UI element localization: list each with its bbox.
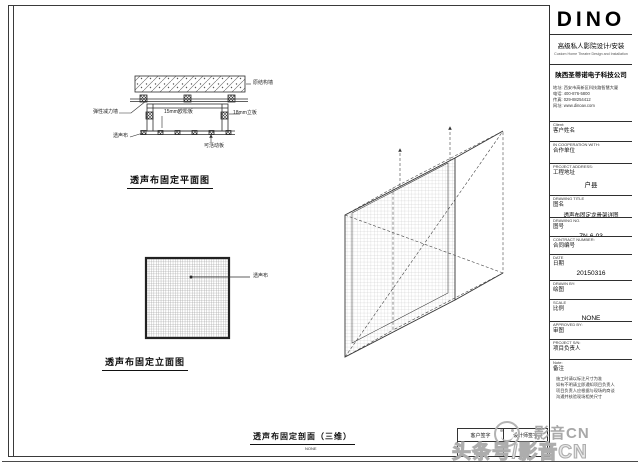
cad-linework	[0, 0, 549, 465]
drawing-no-label-cn: 图号	[553, 224, 629, 231]
title-block: DINO 高级私人影院设计/安装 Custom Home Theatre Des…	[549, 5, 632, 457]
signature-cell-client-blank	[458, 442, 504, 456]
drawing-title-section: DRAWING TITLE 图名 透声布固定龙骨架详图	[550, 196, 632, 218]
project-sn-section: PROJECT S/N: 项目负责人	[550, 340, 632, 360]
tagline-section: 高级私人影院设计/安装 Custom Home Theatre Design a…	[550, 35, 632, 65]
company-website: 网址: www.dinoav.com	[553, 103, 629, 109]
plan-label-structure-wall: 原结构墙	[253, 81, 273, 87]
project-address-value: 户县	[553, 179, 629, 189]
signature-cell-client: 客户签字	[458, 429, 504, 442]
project-address-label-cn: 工程地址	[553, 170, 629, 177]
iso-title: 透声布固定剖面（三维）	[250, 431, 355, 445]
cooperation-label-cn: 合作单位	[553, 148, 629, 155]
note-section: Note: 备注 施工时请以标注尺寸为准 如有不明请立即通知项目负责人 项目负责…	[550, 360, 632, 457]
company-logo: DINO	[550, 5, 632, 35]
date-value: 20150316	[553, 270, 629, 277]
scale-value: NONE	[553, 315, 629, 322]
scale-section: SCALE 比例 NONE	[550, 300, 632, 322]
iso-scale: NONE	[305, 446, 317, 451]
plan-title: 透声布固定平面图	[127, 173, 213, 189]
drawn-by-section: DRAWN BY: 绘图	[550, 281, 632, 300]
drawn-by-label-cn: 绘图	[553, 287, 629, 294]
contract-label-cn: 合同编号	[553, 243, 629, 250]
project-sn-label-cn: 项目负责人	[553, 346, 629, 353]
drawing-no-section: DRAWING NO. 图号 ZN-6-03	[550, 218, 632, 237]
cooperation-section: IN COOPERATION WITH: 合作单位	[550, 142, 632, 164]
tagline-cn: 高级私人影院设计/安装	[553, 40, 629, 50]
client-section: Client: 客户姓名	[550, 122, 632, 142]
note-line-4: 沟通并核验现场相关尺寸	[556, 394, 629, 400]
client-label-cn: 客户姓名	[553, 128, 629, 135]
drawing-title-value: 透声布固定龙骨架详图	[553, 211, 629, 218]
scale-label-cn: 比例	[553, 306, 629, 313]
contract-section: CONTRACT NUMBER: 合同编号	[550, 237, 632, 255]
plan-label-damper: 弹性减力墙	[86, 110, 118, 116]
drawing-title-label-cn: 图名	[553, 202, 629, 209]
tagline-en: Custom Home Theatre Design and Installat…	[553, 52, 629, 56]
plan-label-osb-board: 15mm欧松板	[164, 110, 193, 116]
plan-label-cloth: 透声布	[113, 134, 128, 140]
elevation-label-cloth: 透声布	[253, 274, 268, 280]
drawing-sheet: { "sheet": { "plan": { "title": "透声布固定平面…	[0, 0, 640, 465]
date-section: DATE 日期 20150316	[550, 255, 632, 281]
approved-by-section: APPROVED BY: 审图	[550, 322, 632, 340]
plan-label-movable-board: 可活动板	[204, 144, 224, 150]
elevation-title: 透声布固定立面图	[102, 355, 188, 371]
signature-cell-designer: 设计师签字	[504, 429, 547, 442]
signature-cell-designer-blank	[504, 442, 547, 456]
company-name: 陕西圣蒂诺电子科技公司	[553, 69, 629, 79]
logo-text: DINO	[557, 8, 626, 32]
plan-label-side-board: 18mm立板	[233, 111, 257, 117]
approved-by-label-cn: 审图	[553, 328, 629, 335]
date-label-cn: 日期	[553, 261, 629, 268]
note-label-cn: 备注	[553, 366, 629, 373]
company-section: 陕西圣蒂诺电子科技公司 地址: 西安市高新区科技路智慧大厦 电话: 400-87…	[550, 65, 632, 122]
signature-table: 客户签字 设计师签字	[457, 428, 548, 457]
project-address-section: PROJECT ADDRESS: 工程地址 户县	[550, 164, 632, 196]
